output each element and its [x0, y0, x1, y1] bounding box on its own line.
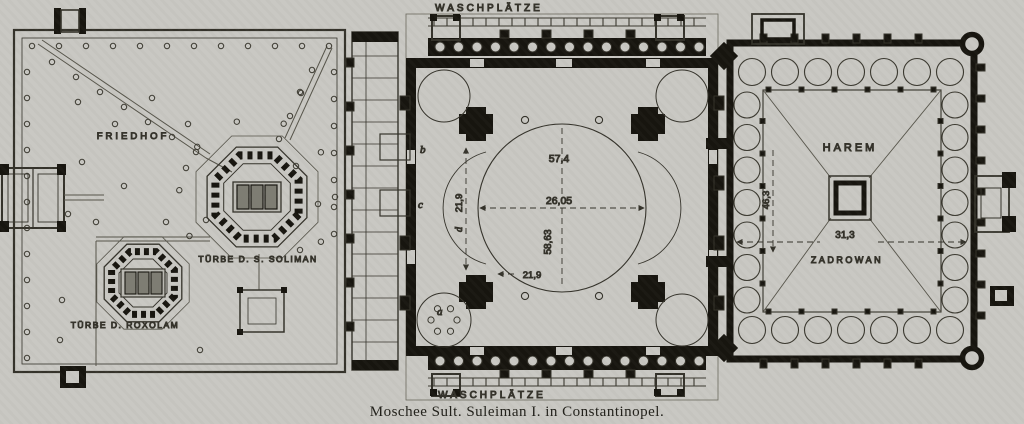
friedhof-label: FRIEDHOF — [97, 131, 170, 142]
marker-a: a — [437, 306, 443, 318]
dim-hall-width: 57,4 — [549, 153, 570, 165]
corner-dome-sw — [417, 293, 471, 347]
turbe-soliman-octagon — [196, 136, 318, 258]
waschplaetze-top-label: WASCHPLÄTZE — [435, 2, 543, 14]
dim-hall-depth: 58,63 — [543, 229, 554, 254]
sarcophagi-roxolam — [125, 272, 162, 294]
wall-pilasters — [760, 34, 985, 368]
waschplaetze-bottom-label: WASCHPLÄTZE — [438, 389, 546, 401]
mosque-section: 57,4 26,05 58,63 21,9 21,9 a b c d WASCH… — [380, 2, 724, 401]
turbe-roxolam-octagon — [97, 237, 189, 329]
stair-room-c — [380, 190, 410, 216]
dim-dome-diameter: 26,05 — [546, 195, 572, 207]
dim-court-depth: 46,3 — [761, 191, 772, 210]
sarcophagi-soliman — [237, 185, 277, 209]
corner-dome-ne — [656, 70, 708, 122]
plan-caption: Moschee Sult. Suleiman I. in Constantino… — [370, 404, 664, 420]
cemetery-gate-bottom-icon — [60, 366, 86, 388]
minaret-tower-se-icon — [963, 349, 982, 368]
minaret-tower-ne-icon — [963, 35, 982, 54]
dim-court-width: 31,3 — [835, 230, 855, 241]
corner-dome-nw — [418, 70, 470, 122]
harem-label: HAREM — [823, 142, 878, 154]
garden-paths — [38, 40, 332, 366]
stair-room-b — [380, 134, 410, 160]
marker-c: c — [418, 199, 423, 211]
courtyard-section: HAREM 31,3 ZADROWAN 46,3 — [706, 14, 1016, 368]
floor-plan-engraving: FRIEDHOF TÜRBE D. S. SOLIMAN TÜRBE D. RO… — [0, 0, 1024, 424]
dim-aisle-left: 21,9 — [454, 194, 465, 213]
turbe-roxolam-label: TÜRBE D. ROXOLAM — [71, 320, 180, 330]
east-semidome-arc — [638, 152, 681, 264]
marker-b: b — [420, 144, 426, 156]
wash-taps-top — [428, 18, 706, 26]
cemetery-west-gate-icon — [0, 164, 66, 232]
dim-aisle-bottom: 21,9 — [523, 270, 542, 281]
west-range-building — [346, 32, 398, 370]
dimension-lines — [466, 128, 644, 288]
court-diagonals — [763, 90, 941, 312]
turbe-soliman-label: TÜRBE D. S. SOLIMAN — [198, 254, 317, 264]
plan-canvas: FRIEDHOF TÜRBE D. S. SOLIMAN TÜRBE D. RO… — [0, 0, 1024, 424]
sadirvan-fountain-icon — [829, 176, 871, 220]
courtyard-south-annex-icon — [990, 286, 1014, 306]
annex-building — [237, 287, 287, 335]
fountain-columns — [428, 306, 460, 335]
wash-taps-bottom — [428, 378, 706, 386]
corner-dome-se — [656, 294, 708, 346]
cemetery-section: FRIEDHOF TÜRBE D. S. SOLIMAN TÜRBE D. RO… — [0, 8, 345, 388]
marker-d: d — [454, 226, 465, 232]
zadrowan-label: ZADROWAN — [811, 255, 883, 265]
